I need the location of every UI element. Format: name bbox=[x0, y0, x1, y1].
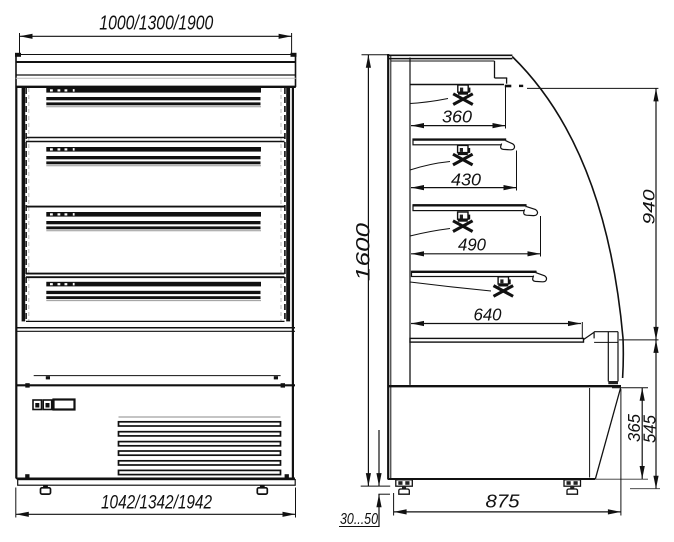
svg-text:430: 430 bbox=[451, 169, 481, 189]
svg-text:1000/1300/1900: 1000/1300/1900 bbox=[99, 13, 213, 35]
svg-text:640: 640 bbox=[474, 305, 502, 325]
svg-text:360: 360 bbox=[442, 106, 472, 126]
svg-text:1042/1342/1942: 1042/1342/1942 bbox=[101, 492, 212, 514]
svg-text:940: 940 bbox=[639, 189, 658, 225]
svg-text:490: 490 bbox=[458, 235, 486, 255]
svg-text:1600: 1600 bbox=[353, 222, 374, 281]
svg-text:875: 875 bbox=[486, 490, 521, 511]
svg-text:30...50: 30...50 bbox=[340, 511, 378, 528]
svg-text:545: 545 bbox=[639, 415, 659, 443]
